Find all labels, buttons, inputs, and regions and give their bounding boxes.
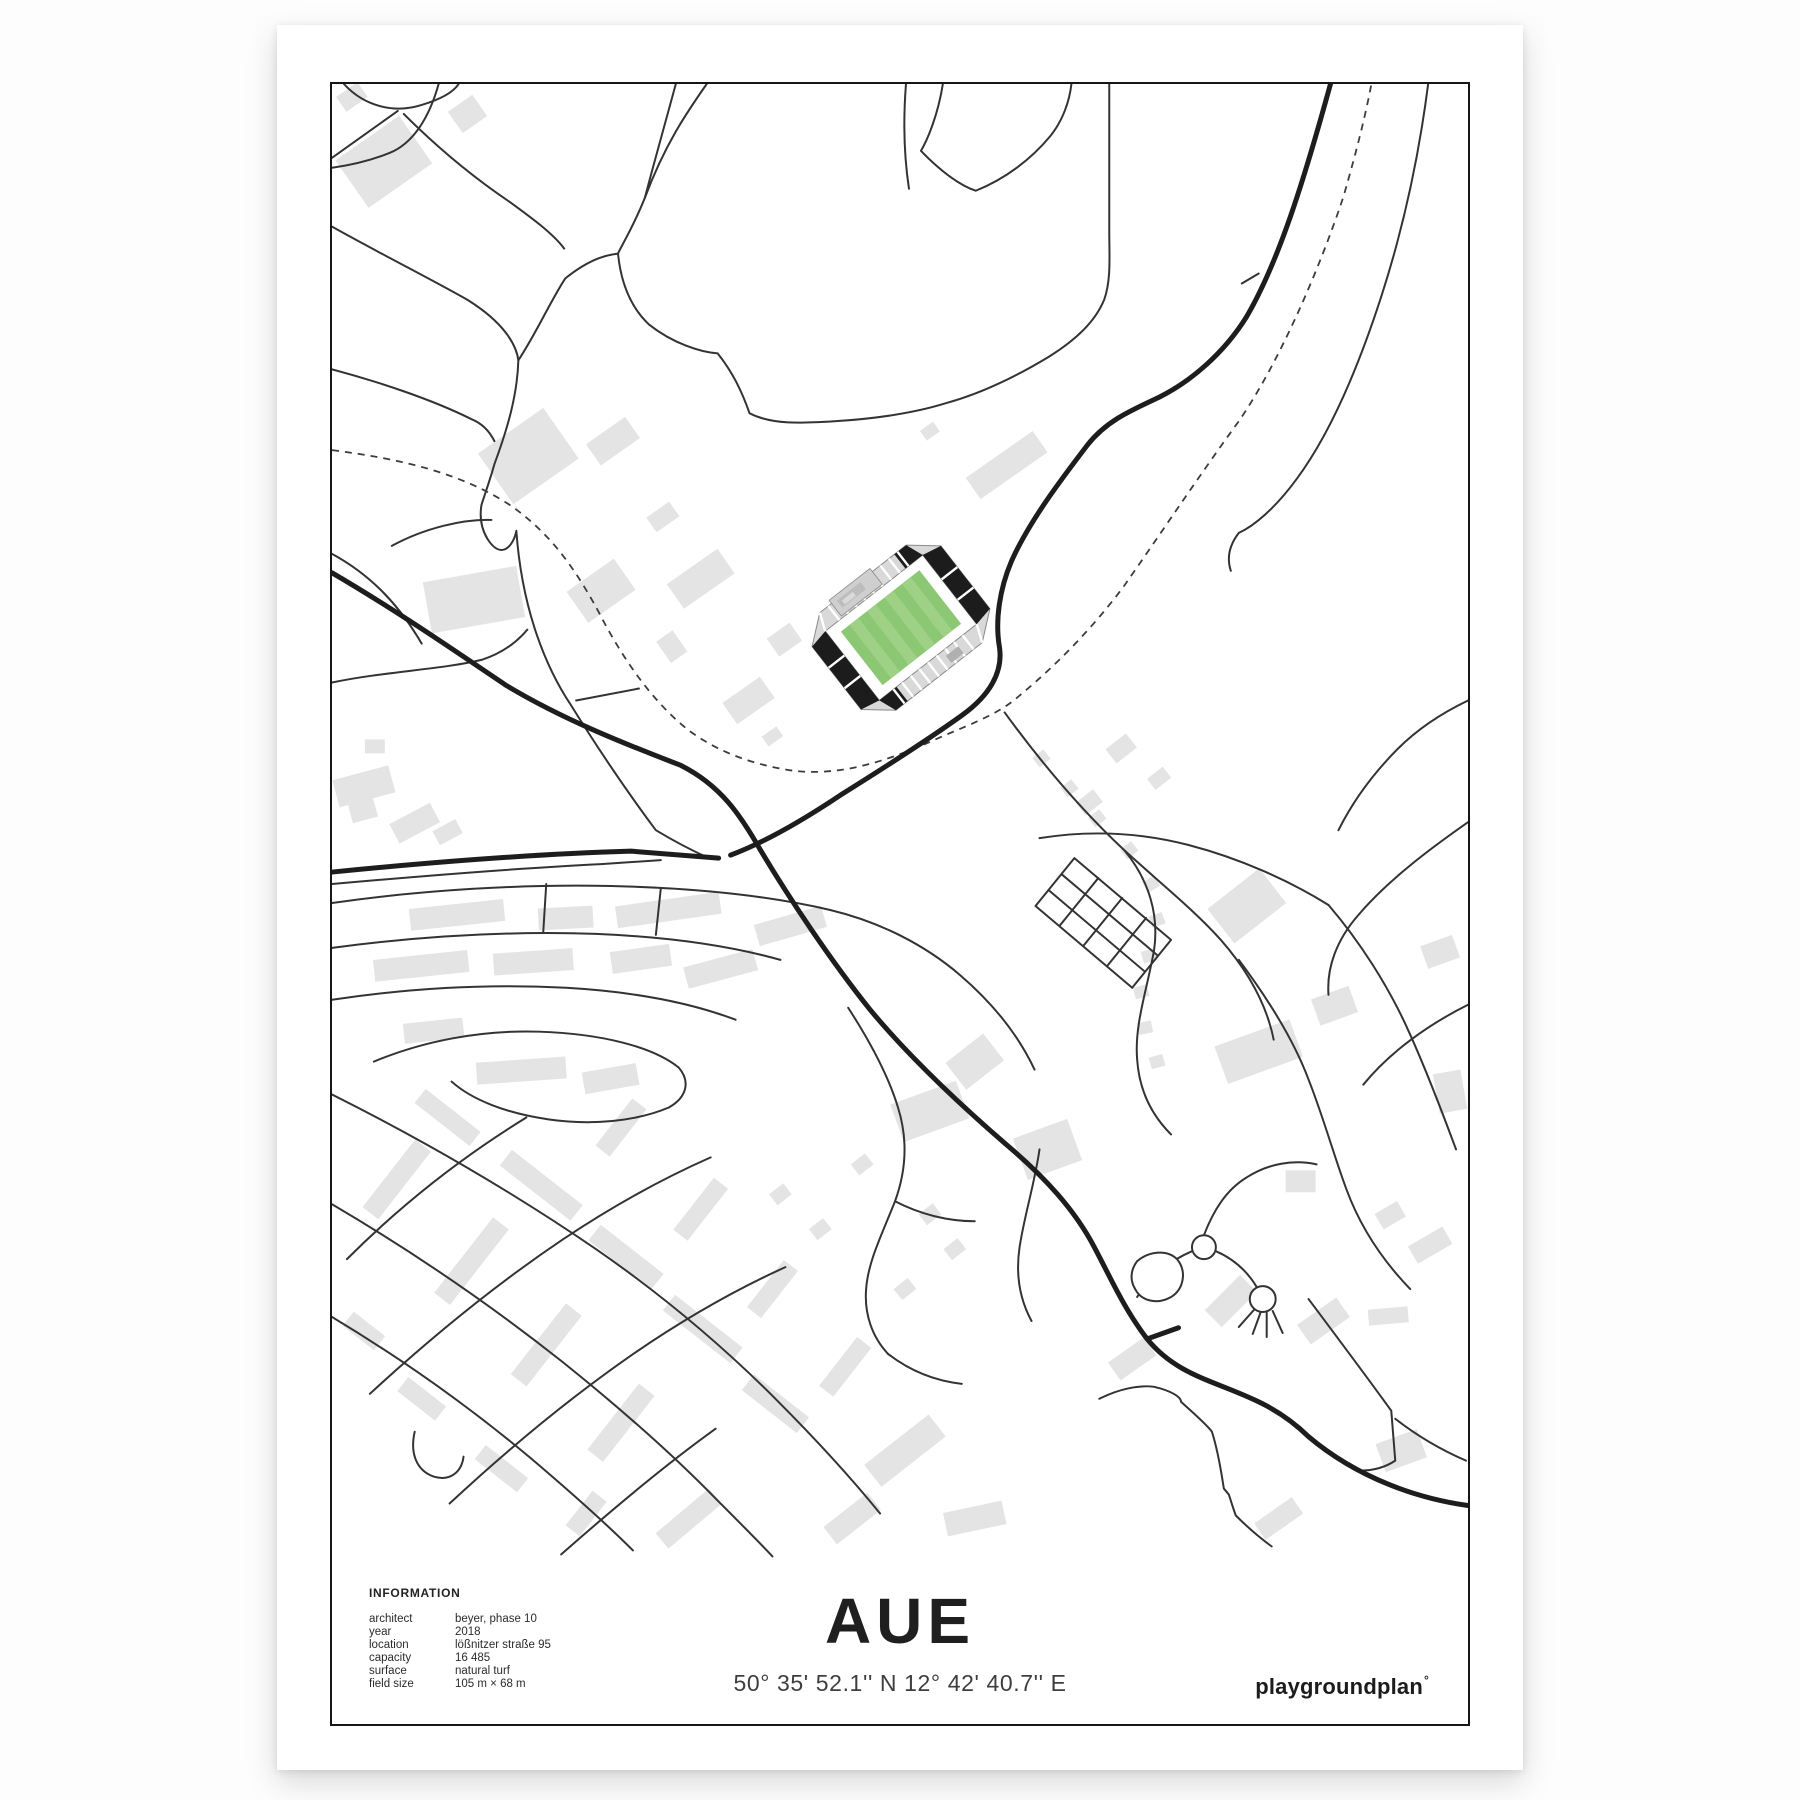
page: { "poster": { "title": "AUE", "coordinat… (0, 0, 1800, 1800)
stadium (796, 525, 1003, 726)
pond-and-circle-features (1132, 1235, 1276, 1312)
stadium-map (332, 84, 1468, 1724)
roundabout-circle (1192, 1235, 1216, 1259)
buildings-layer (332, 84, 1467, 1549)
main-road-north (731, 84, 1331, 855)
main-road-artery (332, 573, 1468, 1506)
map-frame: INFORMATION architect beyer, phase 10 ye… (330, 82, 1470, 1726)
minor-roads-layer (332, 84, 1468, 1556)
fountain-circle (1250, 1286, 1276, 1312)
poster: INFORMATION architect beyer, phase 10 ye… (277, 25, 1523, 1770)
